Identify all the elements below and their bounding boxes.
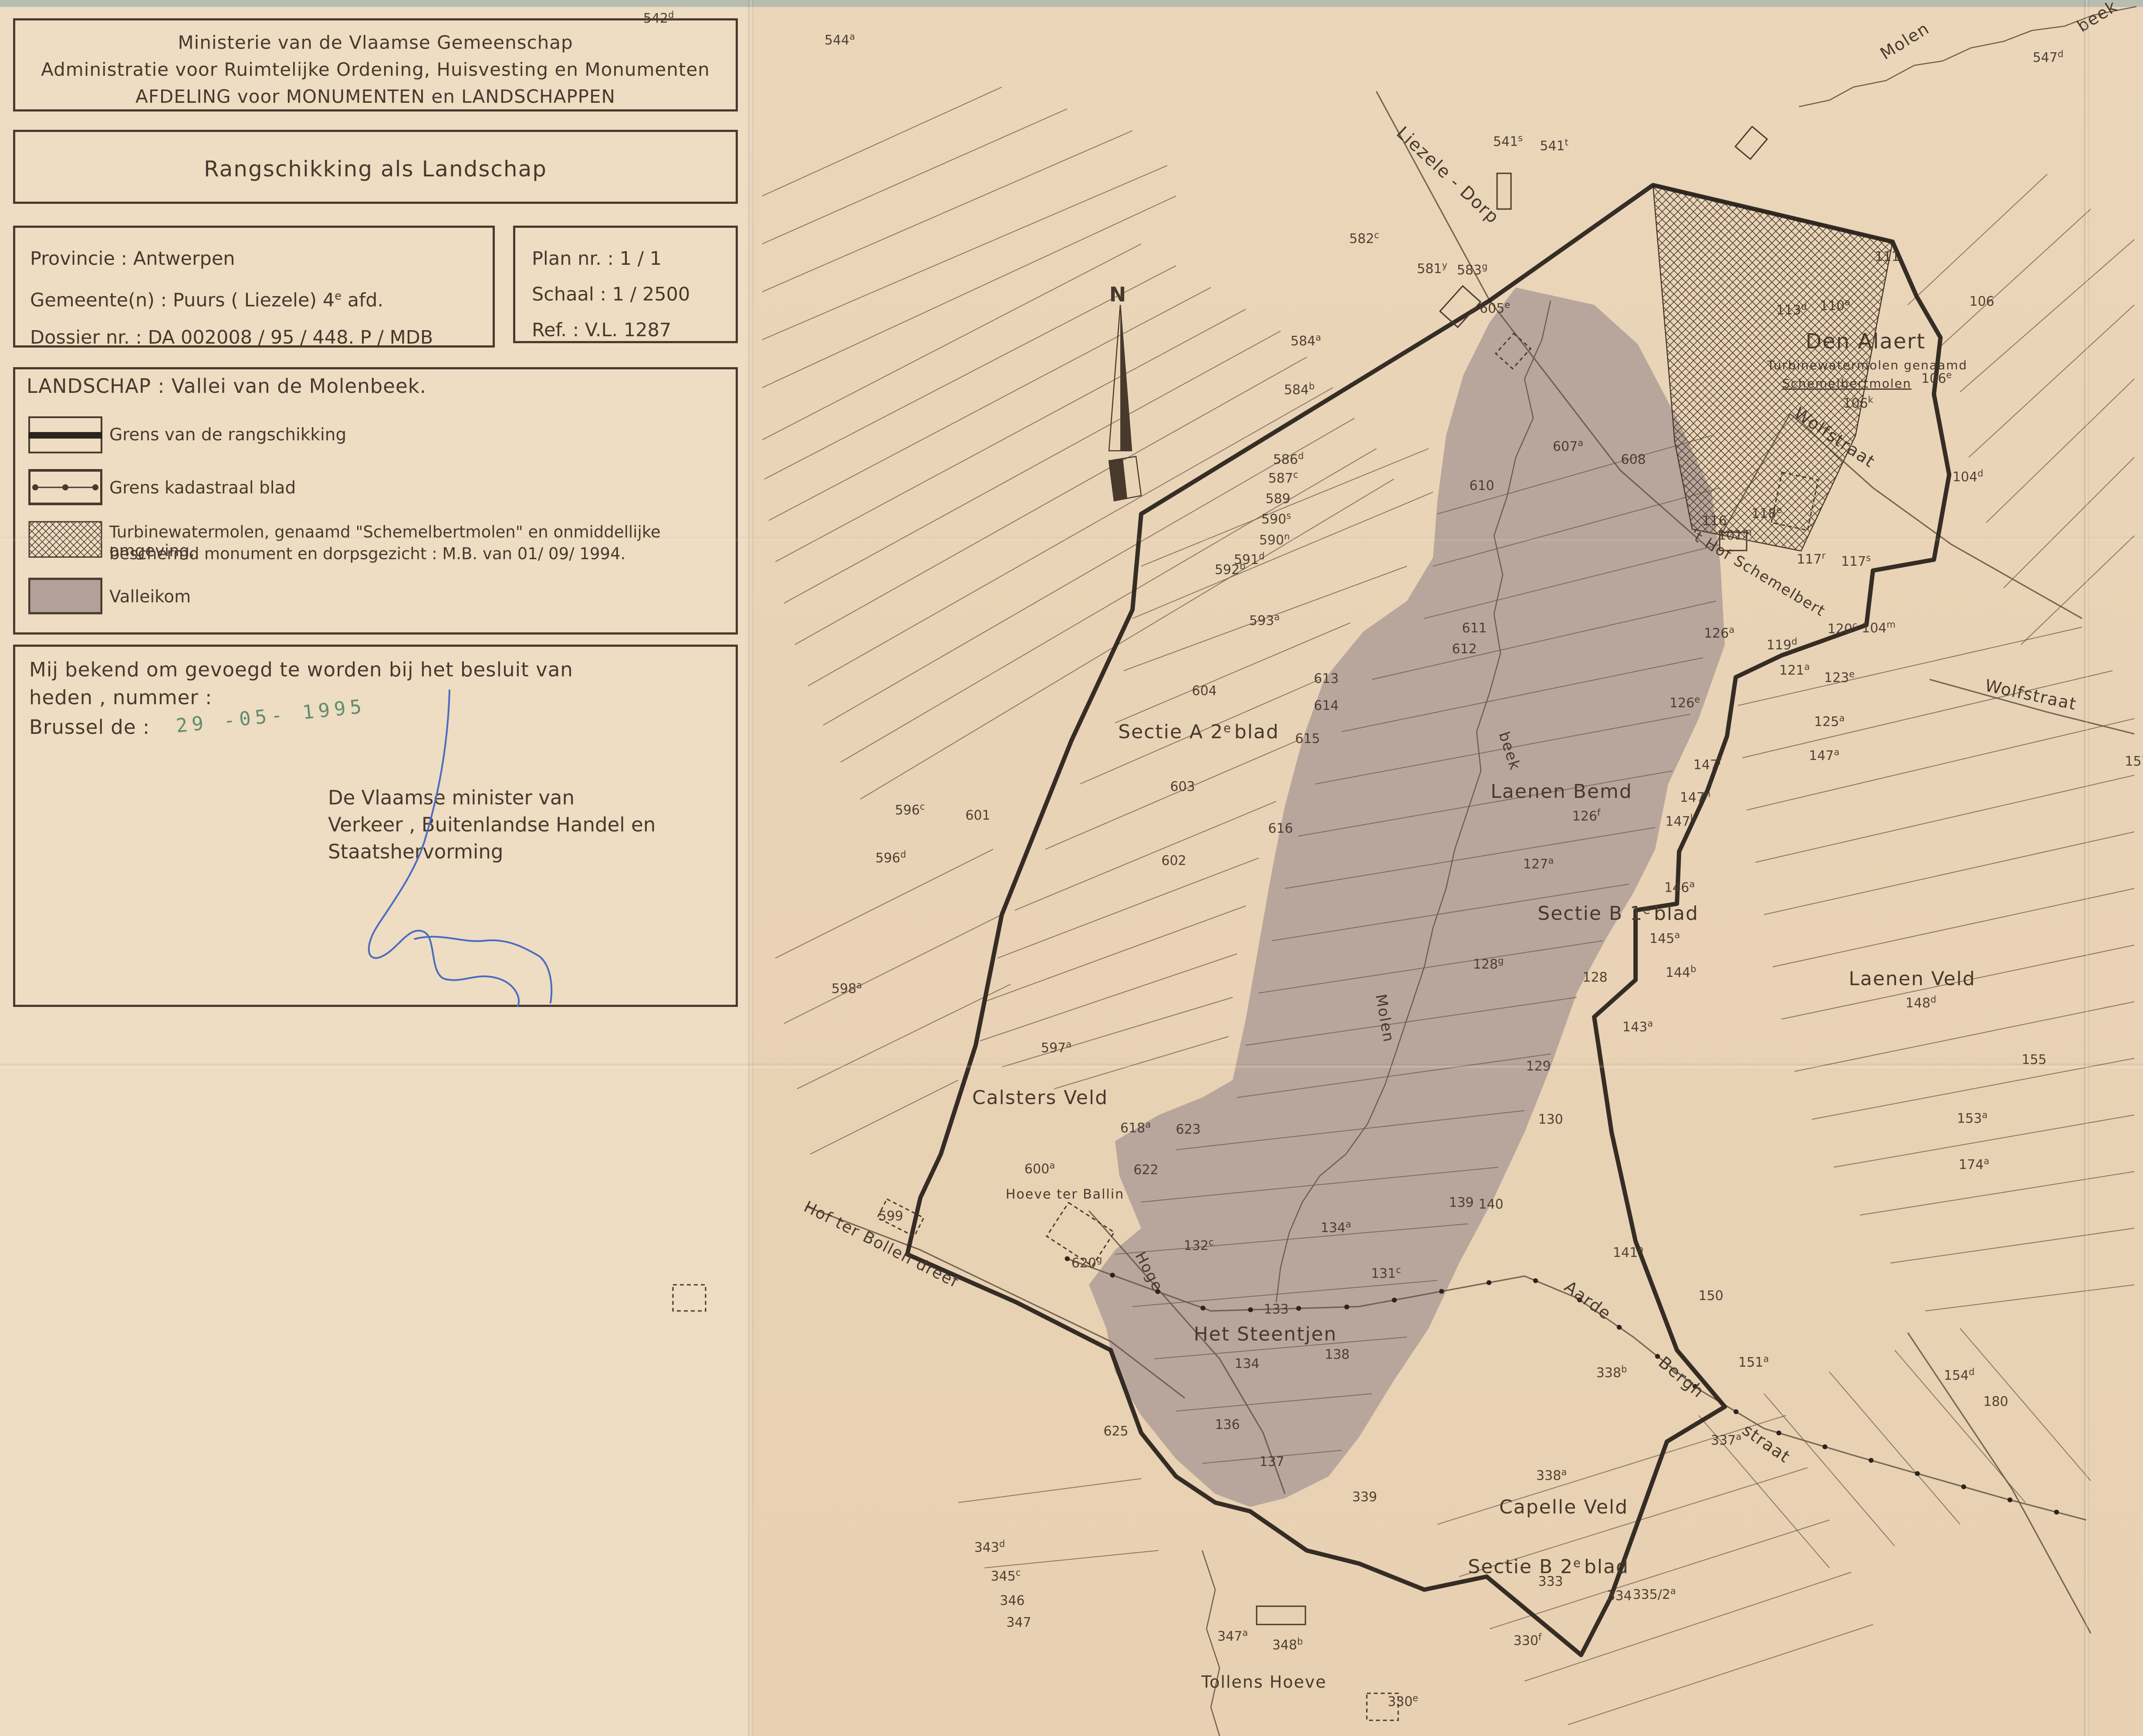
ministry-line1: Ministerie van de Vlaamse Gemeenschap [15, 29, 736, 56]
dossier-line: Dossier nr. : DA 002008 / 95 / 448. P / … [30, 319, 478, 356]
fold-crease-horizontal-upper [0, 536, 2143, 542]
scanner-edge [0, 0, 2143, 7]
ref-line: Ref. : V.L. 1287 [532, 312, 719, 348]
minister-signature-block: De Vlaamse minister van Verkeer , Buiten… [328, 784, 656, 865]
statement-box: Mij bekend om gevoegd te worden bij het … [13, 645, 738, 1007]
gemeente-line: Gemeente(n) : Puurs ( Liezele) 4e afd. [30, 277, 478, 319]
gemeente-text: Gemeente(n) : Puurs ( Liezele) 4 [30, 289, 335, 311]
gemeente-sup: e [335, 290, 341, 303]
ministry-line2: Administratie voor Ruimtelijke Ordening,… [15, 56, 736, 83]
schaal-line: Schaal : 1 / 2500 [532, 277, 719, 312]
provincie-line: Provincie : Antwerpen [30, 240, 478, 277]
statement-line2: heden , nummer : [29, 686, 212, 709]
minister-line2: Verkeer , Buitenlandse Handel en [328, 811, 656, 838]
province-info-box: Provincie : Antwerpen Gemeente(n) : Puur… [13, 226, 495, 348]
minister-line3: Staatshervorming [328, 838, 656, 865]
statement-line1: Mij bekend om gevoegd te worden bij het … [29, 658, 573, 681]
scanned-map-document: { "header": { "line1": "Ministerie van d… [0, 0, 2143, 1736]
legend-box: LANDSCHAP : Vallei van de Molenbeek. Gre… [13, 367, 738, 635]
plan-info-box: Plan nr. : 1 / 1 Schaal : 1 / 2500 Ref. … [513, 226, 738, 343]
fold-crease-vertical-right [2083, 0, 2090, 1736]
fold-crease-vertical-left [747, 0, 754, 1736]
ministry-line3: AFDELING voor MONUMENTEN en LANDSCHAPPEN [15, 83, 736, 110]
minister-line1: De Vlaamse minister van [328, 784, 656, 811]
map-paper [750, 0, 2143, 1736]
document-title-box: Rangschikking als Landschap [13, 130, 738, 204]
legend-item-boundary: Grens van de rangschikking [109, 425, 346, 445]
legend-item-valleikom: Valleikom [109, 587, 191, 607]
cadastral-symbol [28, 469, 102, 506]
plan-nr-line: Plan nr. : 1 / 1 [532, 241, 719, 277]
fold-crease-horizontal-lower [0, 1063, 2143, 1069]
landschap-title: LANDSCHAP : Vallei van de Molenbeek. [27, 375, 426, 398]
gemeente-suffix: afd. [341, 289, 383, 311]
valleikom-symbol [28, 578, 102, 615]
page-title: Rangschikking als Landschap [15, 156, 736, 182]
ministry-header-box: Ministerie van de Vlaamse Gemeenschap Ad… [13, 18, 738, 111]
legend-item-monument-2: beschermd monument en dorpsgezicht : M.B… [109, 544, 625, 563]
boundary-symbol [28, 416, 102, 453]
legend-item-cadastral: Grens kadastraal blad [109, 478, 296, 498]
statement-line3: Brussel de : [29, 716, 150, 739]
